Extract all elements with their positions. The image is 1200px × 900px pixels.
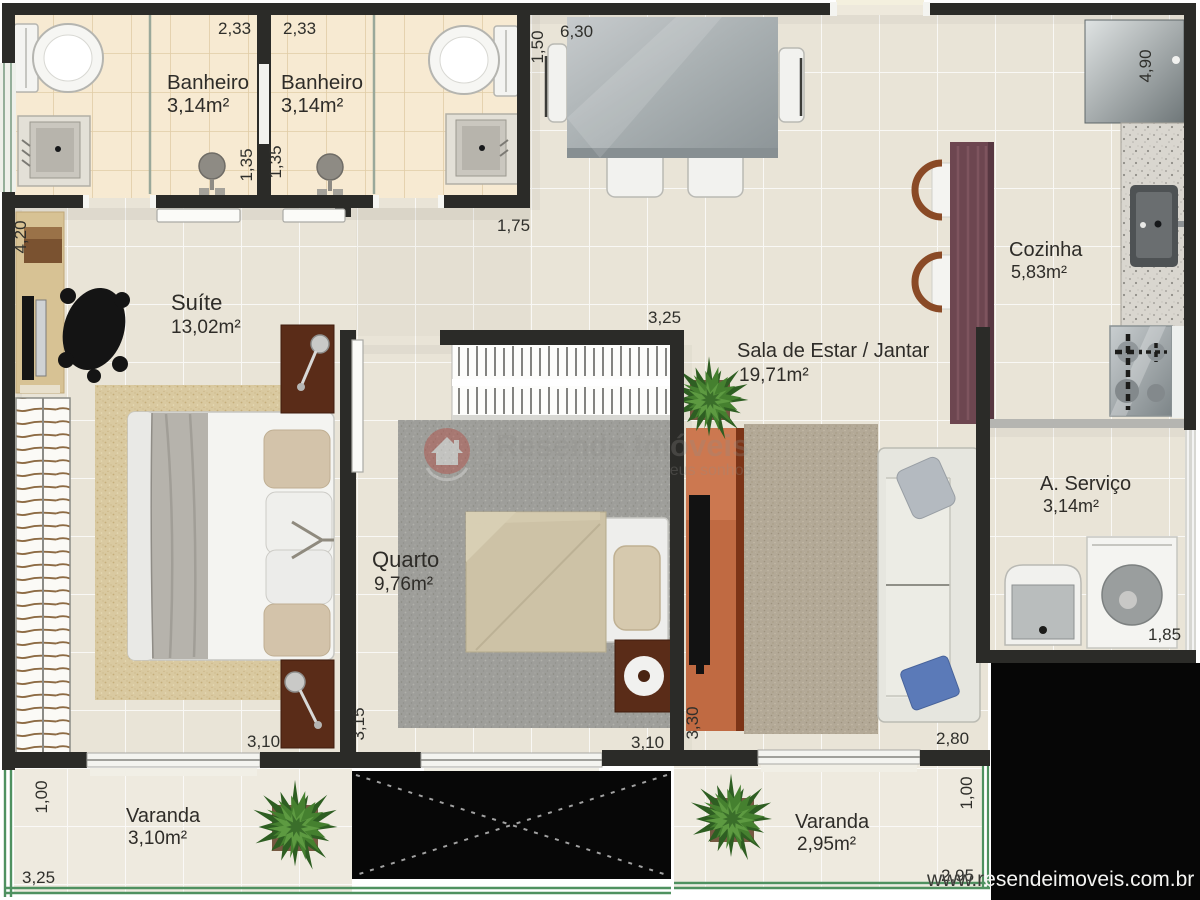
svg-text:3,10: 3,10	[247, 732, 280, 751]
svg-text:6,30: 6,30	[560, 22, 593, 41]
svg-text:1,50: 1,50	[528, 30, 547, 63]
svg-text:3,25: 3,25	[22, 868, 55, 887]
svg-text:19,71m²: 19,71m²	[739, 365, 809, 386]
svg-text:Sala de Estar / Jantar: Sala de Estar / Jantar	[737, 340, 930, 362]
svg-text:3,14m²: 3,14m²	[167, 95, 230, 117]
svg-text:3,14m²: 3,14m²	[281, 95, 344, 117]
svg-text:3,10: 3,10	[631, 733, 664, 752]
svg-text:2,80: 2,80	[936, 729, 969, 748]
svg-text:1,75: 1,75	[497, 216, 530, 235]
svg-text:3,25: 3,25	[648, 308, 681, 327]
svg-text:Resende Imóveis: Resende Imóveis	[496, 428, 749, 463]
svg-text:1,35: 1,35	[266, 145, 285, 178]
svg-text:Banheiro: Banheiro	[167, 71, 249, 94]
svg-text:1,85: 1,85	[1148, 625, 1181, 644]
svg-text:2,33: 2,33	[218, 19, 251, 38]
svg-text:1,00: 1,00	[957, 776, 976, 809]
svg-text:Suíte: Suíte	[171, 290, 222, 315]
svg-text:9,76m²: 9,76m²	[374, 574, 433, 595]
svg-text:1,35: 1,35	[237, 148, 256, 181]
svg-text:2,33: 2,33	[283, 19, 316, 38]
svg-text:13,02m²: 13,02m²	[171, 317, 241, 338]
svg-text:4,90: 4,90	[1136, 49, 1155, 82]
svg-text:Varanda: Varanda	[795, 811, 870, 833]
svg-text:4,20: 4,20	[11, 220, 30, 253]
svg-text:5,83m²: 5,83m²	[1011, 262, 1067, 282]
svg-text:1,00: 1,00	[32, 780, 51, 813]
svg-text:Cozinha: Cozinha	[1009, 239, 1083, 261]
svg-text:Banheiro: Banheiro	[281, 71, 363, 94]
svg-text:3,15: 3,15	[349, 707, 368, 740]
svg-text:www.r: www.r	[926, 868, 984, 891]
svg-text:3,30: 3,30	[683, 706, 702, 739]
svg-text:Varanda: Varanda	[126, 805, 201, 827]
svg-text:Quarto: Quarto	[372, 547, 439, 572]
svg-text:2,95m²: 2,95m²	[797, 834, 856, 855]
svg-text:3,14m²: 3,14m²	[1043, 496, 1099, 516]
svg-text:A. Serviço: A. Serviço	[1040, 473, 1131, 495]
svg-text:Realize aqui o imóvel de seus: Realize aqui o imóvel de seus sonhos	[483, 462, 752, 479]
svg-text:3,10m²: 3,10m²	[128, 828, 187, 849]
